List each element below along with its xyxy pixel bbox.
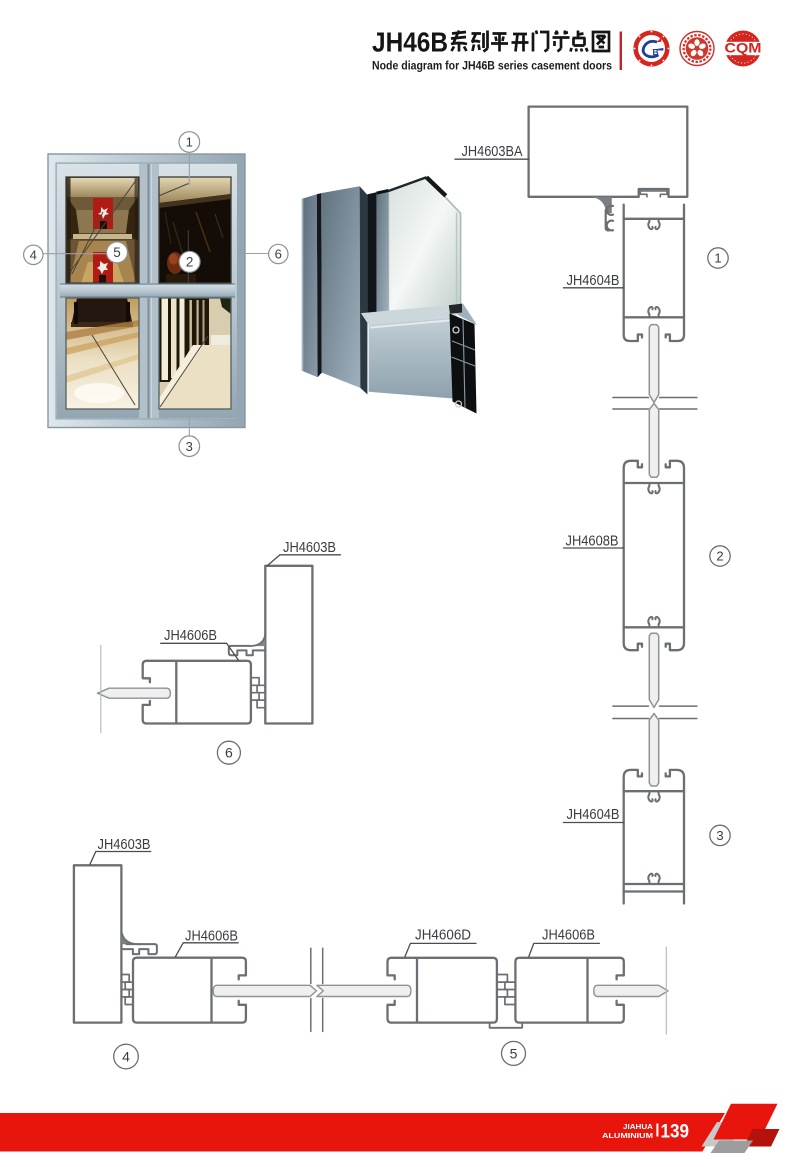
svg-text:JH4604B: JH4604B [567,273,620,289]
svg-text:JH4603B: JH4603B [283,540,336,556]
svg-text:4: 4 [122,1049,130,1065]
svg-text:6: 6 [225,745,233,761]
svg-text:JH4603BA: JH4603BA [462,144,523,160]
svg-text:3: 3 [716,828,723,843]
svg-text:B: B [653,47,659,57]
svg-text:4: 4 [30,247,37,262]
svg-text:139: 139 [661,1122,690,1143]
svg-text:1: 1 [186,135,193,150]
svg-text:JH4606D: JH4606D [415,927,471,943]
svg-text:5: 5 [510,1046,518,1062]
svg-text:6: 6 [275,247,282,262]
svg-text:ALUMINIUM: ALUMINIUM [602,1131,653,1140]
svg-text:JH46B: JH46B [372,27,448,58]
svg-text:JH4603B: JH4603B [98,837,151,853]
svg-text:CQM: CQM [725,41,762,56]
svg-text:JH4606B: JH4606B [542,927,595,943]
svg-text:JH4608B: JH4608B [566,534,619,550]
svg-text:5: 5 [113,245,121,260]
svg-text:JH4606B: JH4606B [185,928,238,944]
svg-text:1: 1 [714,251,721,266]
svg-text:Node diagram for JH46B series: Node diagram for JH46B series casement d… [372,59,612,73]
svg-text:2: 2 [716,549,723,564]
svg-text:2: 2 [186,254,194,269]
svg-text:JH4604B: JH4604B [567,807,620,823]
svg-text:3: 3 [186,439,193,454]
svg-text:JH4606B: JH4606B [164,628,217,644]
